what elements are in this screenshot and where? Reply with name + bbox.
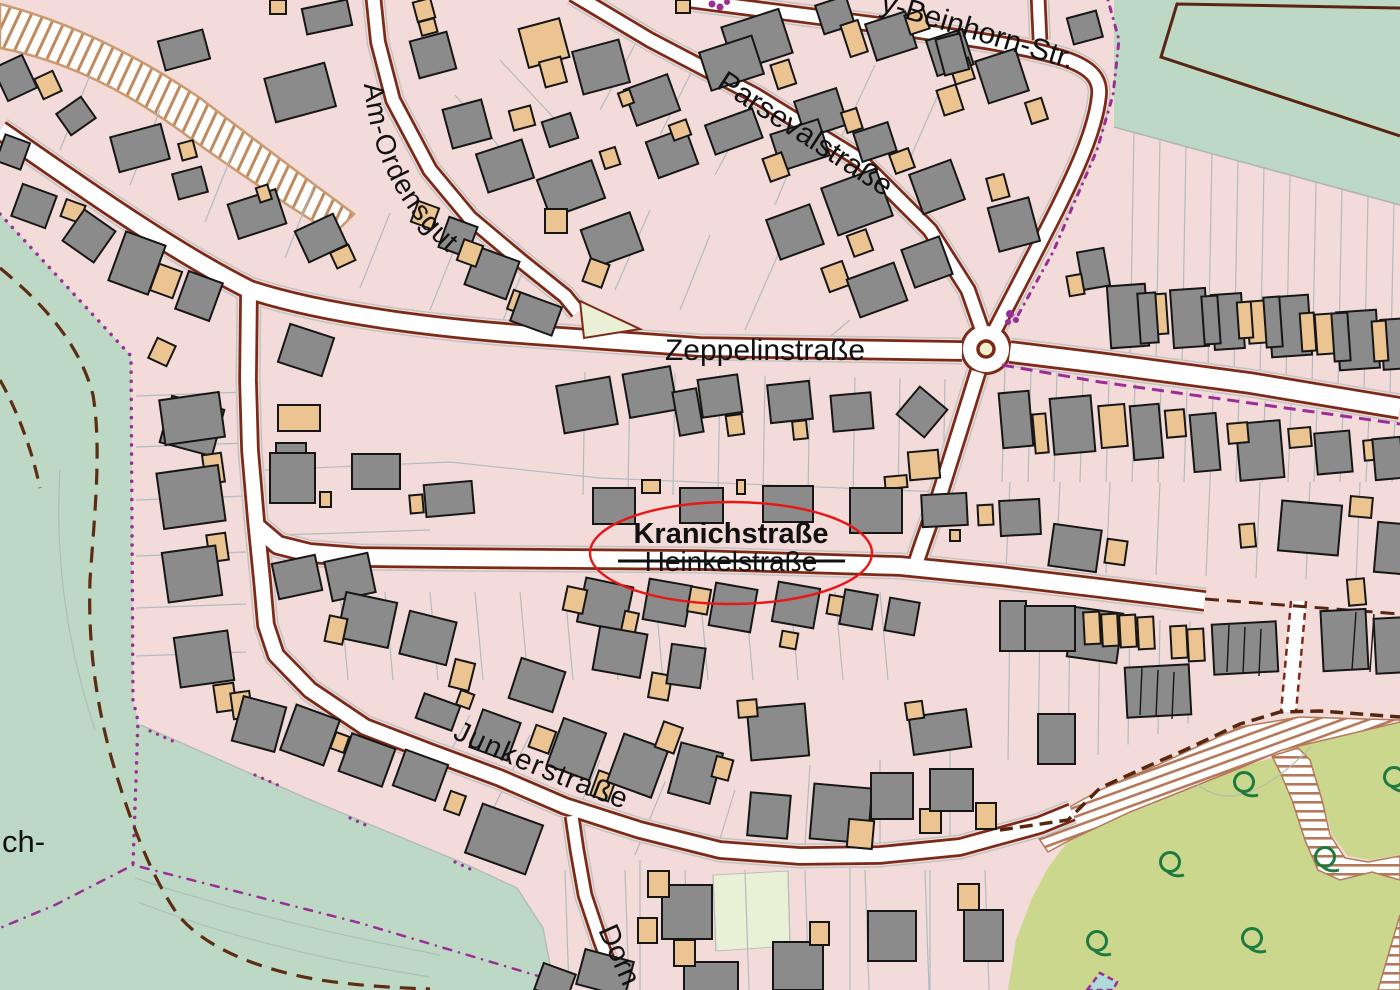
- svg-text:ch-: ch-: [2, 824, 45, 859]
- svg-text:Zeppelinstraße: Zeppelinstraße: [665, 334, 865, 367]
